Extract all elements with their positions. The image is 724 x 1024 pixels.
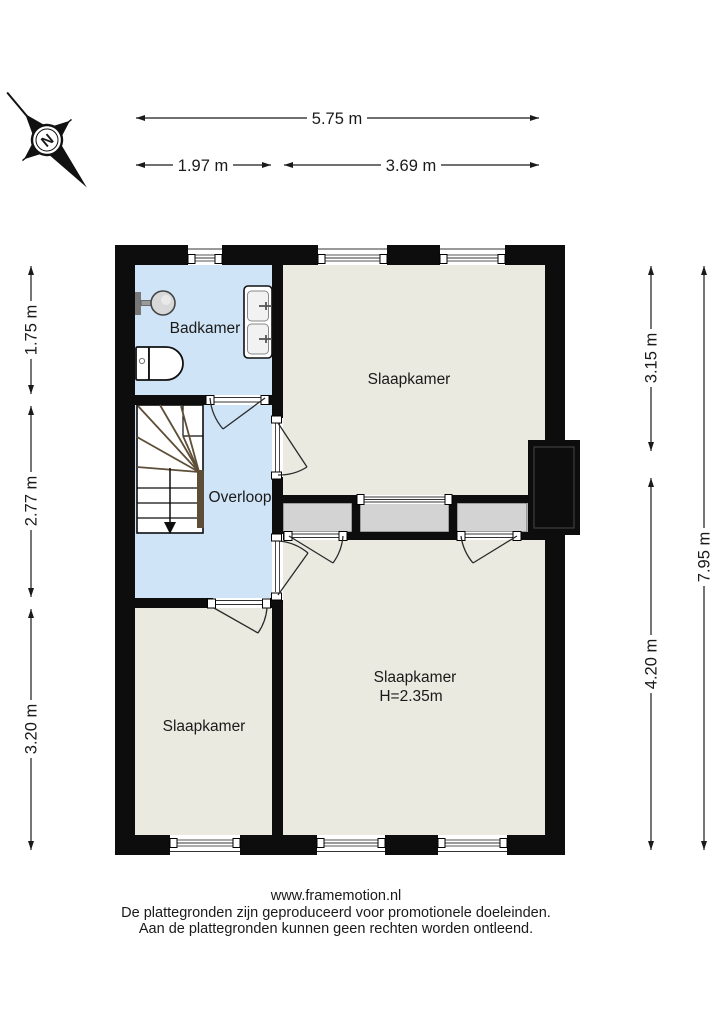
- footer-disclaimer-1: De plattegronden zijn geproduceerd voor …: [121, 905, 551, 921]
- room-label-bedroom-main-height: H=2.35m: [379, 688, 442, 705]
- wall-chimney: [528, 440, 580, 535]
- dimension-label-left-bottom: 3.20 m: [23, 704, 41, 754]
- footer-website: www.framemotion.nl: [270, 888, 402, 904]
- wall-outer-right: [545, 245, 565, 855]
- floorplan-figure: N 5.75 m 1.97 m 3.69 m 1.75 m 2.77 m: [0, 0, 724, 1024]
- closet-left: [283, 503, 352, 532]
- room-label-landing: Overloop: [209, 489, 272, 506]
- room-label-bedroom-left: Slaapkamer: [163, 718, 246, 735]
- room-label-bathroom: Badkamer: [170, 320, 241, 337]
- closet-middle: [360, 503, 449, 532]
- wall-outer-left: [115, 245, 135, 855]
- dimension-label-right-total: 7.95 m: [696, 532, 714, 582]
- door-closet-middle-sliding: [357, 495, 452, 505]
- window-bathroom: [188, 245, 222, 265]
- dimension-label-left-top: 1.75 m: [23, 305, 41, 355]
- window-bedroom-left: [170, 835, 240, 855]
- dimension-label-right-bottom: 4.20 m: [643, 639, 661, 689]
- dimension-label-top-left: 1.97 m: [178, 157, 228, 175]
- window-bedroom-top-2: [440, 245, 505, 265]
- room-label-bedroom-top: Slaapkamer: [368, 371, 451, 388]
- shower-icon: [135, 291, 175, 315]
- dimension-label-left-middle: 2.77 m: [23, 476, 41, 526]
- toilet-icon: [136, 347, 183, 380]
- closet-areas: [283, 503, 527, 532]
- dimension-label-top-right: 3.69 m: [386, 157, 436, 175]
- window-bedroom-main-2: [438, 835, 507, 855]
- room-label-bedroom-main: Slaapkamer: [374, 669, 457, 686]
- window-bedroom-main-1: [317, 835, 385, 855]
- staircase: [137, 405, 204, 534]
- floorplan-page: N 5.75 m 1.97 m 3.69 m 1.75 m 2.77 m: [0, 0, 724, 1024]
- closet-right: [457, 503, 527, 532]
- stair-handrail: [197, 470, 204, 528]
- dimension-label-top-total: 5.75 m: [312, 110, 362, 128]
- double-sink-icon: [244, 286, 272, 358]
- window-bedroom-top-1: [318, 245, 387, 265]
- dimension-label-right-top: 3.15 m: [643, 333, 661, 383]
- footer-disclaimer-2: Aan de plattegronden kunnen geen rechten…: [139, 921, 533, 937]
